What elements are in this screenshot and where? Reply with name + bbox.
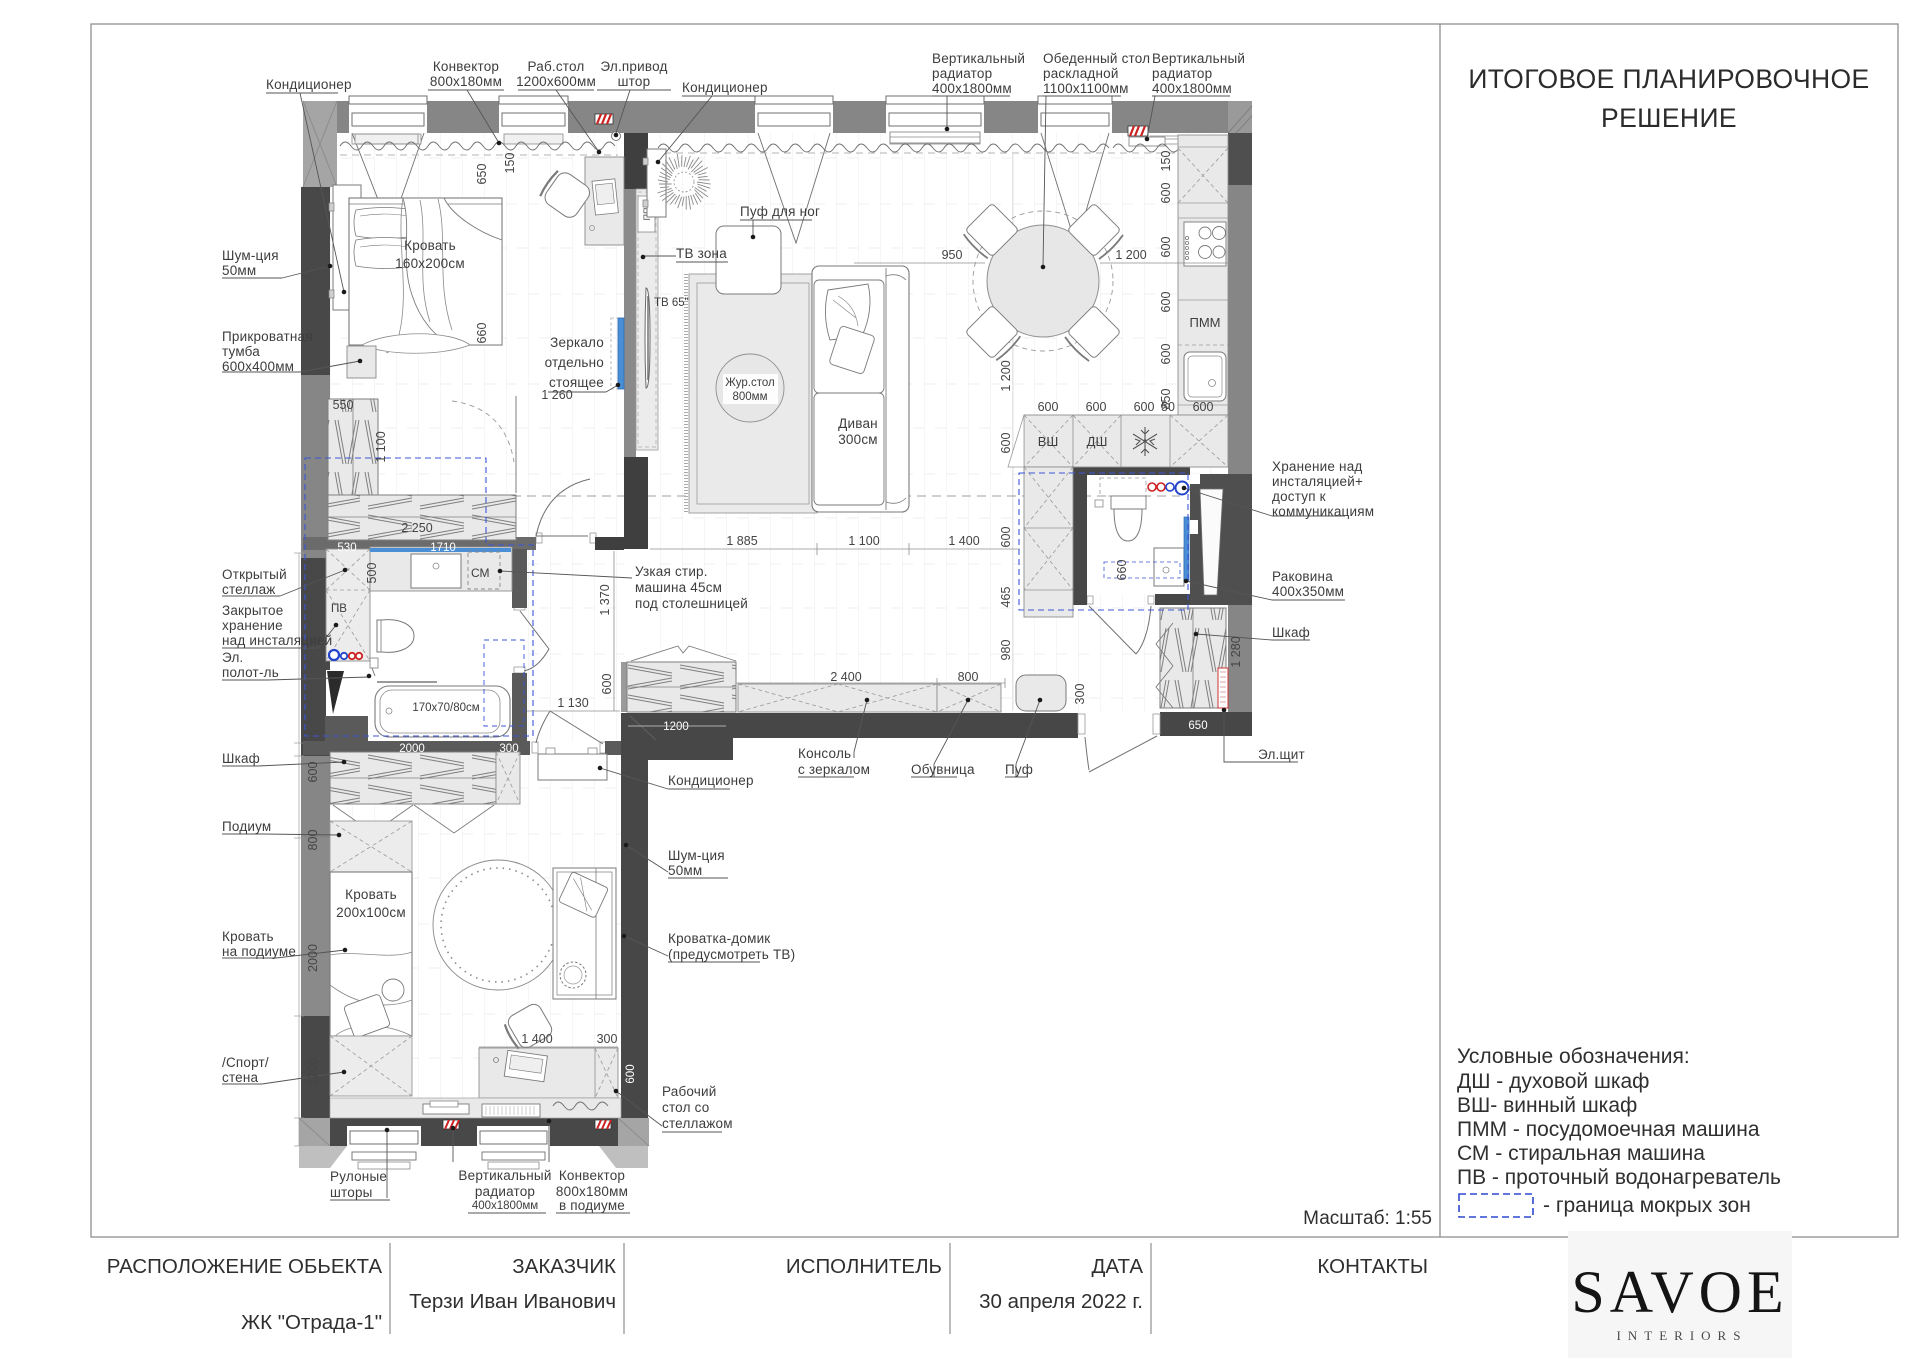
svg-text:РЕШЕНИЕ: РЕШЕНИЕ [1601,103,1737,133]
svg-text:800мм: 800мм [733,391,768,403]
svg-text:465: 465 [999,587,1013,608]
svg-text:ЗАКАЗЧИК: ЗАКАЗЧИК [512,1255,616,1278]
svg-text:660: 660 [1115,560,1129,581]
svg-text:радиатор: радиатор [475,1184,535,1199]
svg-text:Шум-ция: Шум-ция [668,848,725,863]
svg-text:Закрытое: Закрытое [222,603,283,618]
svg-text:170х70/80см: 170х70/80см [412,702,479,714]
svg-text:Диван: Диван [838,416,878,431]
svg-text:660: 660 [475,323,489,344]
svg-text:400х1800мм: 400х1800мм [472,1200,538,1212]
svg-text:коммуникациям: коммуникациям [1272,504,1374,519]
svg-text:радиатор: радиатор [932,66,992,81]
svg-text:Раковина: Раковина [1272,569,1333,584]
svg-text:ВШ: ВШ [1038,434,1059,449]
svg-text:шторы: шторы [330,1185,373,1200]
svg-text:Пуф: Пуф [1005,762,1033,777]
svg-text:600: 600 [625,1064,637,1083]
svg-text:с зеркалом: с зеркалом [798,762,870,777]
svg-text:800: 800 [958,670,979,684]
svg-text:РАСПОЛОЖЕНИЕ ОБЬЕКТА: РАСПОЛОЖЕНИЕ ОБЬЕКТА [107,1255,383,1278]
svg-text:Консоль: Консоль [798,746,851,761]
svg-text:2 400: 2 400 [830,670,861,684]
svg-text:1 130: 1 130 [557,696,588,710]
svg-text:600: 600 [306,762,320,783]
svg-text:1200х600мм: 1200х600мм [516,74,596,89]
svg-text:Обеденный стол: Обеденный стол [1043,51,1150,66]
svg-text:стена: стена [222,1070,259,1085]
svg-text:стеллаж: стеллаж [222,582,276,597]
svg-text:1710: 1710 [430,542,456,554]
svg-text:Условные обозначения:: Условные обозначения: [1457,1045,1690,1068]
svg-text:2 250: 2 250 [401,521,432,535]
svg-text:машина 45см: машина 45см [635,580,722,595]
svg-text:800: 800 [306,830,320,851]
svg-text:ПММ: ПММ [1189,315,1220,330]
svg-text:600: 600 [600,674,614,695]
svg-text:Открытый: Открытый [222,567,287,582]
svg-text:500: 500 [365,563,379,584]
svg-text:Конвектор: Конвектор [559,1168,625,1183]
svg-text:радиатор: радиатор [1152,66,1212,81]
svg-text:Пуф для ног: Пуф для ног [740,204,820,219]
svg-text:600: 600 [1193,400,1214,414]
svg-text:650: 650 [1188,720,1207,732]
svg-text:Хранение над: Хранение над [1272,459,1362,474]
svg-text:Вертикальный: Вертикальный [458,1168,551,1183]
svg-text:980: 980 [999,640,1013,661]
svg-text:50мм: 50мм [668,863,702,878]
svg-text:1 100: 1 100 [374,431,388,462]
svg-text:хранение: хранение [222,618,283,633]
svg-text:ДШ: ДШ [1087,434,1108,449]
svg-text:ДШ - духовой шкаф: ДШ - духовой шкаф [1457,1070,1649,1093]
svg-text:Зеркало: Зеркало [550,335,604,350]
svg-text:1 400: 1 400 [521,1032,552,1046]
svg-text:над инсталяцией: над инсталяцией [222,633,332,648]
svg-text:Обувница: Обувница [911,762,975,777]
svg-text:/Спорт/: /Спорт/ [222,1055,269,1070]
svg-text:Шкаф: Шкаф [222,751,260,766]
svg-text:1 260: 1 260 [541,388,572,402]
svg-text:на подиуме: на подиуме [222,944,296,959]
svg-text:600: 600 [1159,344,1173,365]
svg-text:600: 600 [1159,237,1173,258]
svg-text:1200: 1200 [306,1058,320,1086]
svg-text:160х200см: 160х200см [395,256,465,271]
svg-text:1 885: 1 885 [726,534,757,548]
svg-text:650: 650 [475,164,489,185]
svg-text:400х1800мм: 400х1800мм [932,81,1012,96]
svg-text:ПВ - проточный водонагреватель: ПВ - проточный водонагреватель [1457,1166,1781,1189]
svg-text:300см: 300см [838,432,878,447]
svg-text:отдельно: отдельно [545,355,604,370]
svg-text:300: 300 [597,1032,618,1046]
svg-text:Терзи Иван Иванович: Терзи Иван Иванович [409,1290,616,1313]
svg-text:ДАТА: ДАТА [1092,1255,1144,1278]
svg-text:(предусмотреть ТВ): (предусмотреть ТВ) [668,947,795,962]
svg-text:150: 150 [503,153,517,174]
svg-text:стол со: стол со [662,1100,709,1115]
svg-text:ИСПОЛНИТЕЛЬ: ИСПОЛНИТЕЛЬ [786,1255,942,1278]
svg-text:600: 600 [1159,292,1173,313]
svg-text:Подиум: Подиум [222,819,271,834]
svg-text:СМ - стиральная машина: СМ - стиральная машина [1457,1142,1705,1165]
svg-text:Масштаб: 1:55: Масштаб: 1:55 [1303,1208,1432,1229]
svg-text:600х400мм: 600х400мм [222,359,294,374]
svg-text:550: 550 [333,398,354,412]
svg-text:2000: 2000 [399,743,425,755]
svg-text:2000: 2000 [306,944,320,972]
svg-text:600: 600 [1038,400,1059,414]
svg-text:ПВ: ПВ [331,603,347,615]
svg-text:300: 300 [1073,684,1087,705]
svg-text:Кровать: Кровать [222,929,274,944]
svg-text:КОНТАКТЫ: КОНТАКТЫ [1317,1255,1428,1278]
svg-text:600: 600 [1159,183,1173,204]
svg-text:530: 530 [337,542,356,554]
svg-text:Узкая стир.: Узкая стир. [635,564,708,579]
svg-text:Рабочий: Рабочий [662,1084,717,1099]
svg-text:Шкаф: Шкаф [1272,625,1310,640]
svg-text:Жур.стол: Жур.стол [725,377,774,389]
svg-text:600: 600 [999,433,1013,454]
svg-text:150: 150 [1159,151,1173,172]
svg-text:600: 600 [1086,400,1107,414]
svg-text:ЖК "Отрада-1": ЖК "Отрада-1" [241,1311,382,1334]
svg-text:Кровать: Кровать [404,238,456,253]
svg-text:400х1800мм: 400х1800мм [1152,81,1232,96]
svg-text:950: 950 [942,248,963,262]
svg-text:Кровать: Кровать [345,887,397,902]
svg-text:1200: 1200 [663,721,689,733]
svg-text:Вертикальный: Вертикальный [932,51,1025,66]
svg-text:1 100: 1 100 [848,534,879,548]
svg-text:600: 600 [999,527,1013,548]
svg-text:50мм: 50мм [222,263,256,278]
svg-text:Шум-ция: Шум-ция [222,248,279,263]
svg-text:- граница мокрых зон: - граница мокрых зон [1543,1194,1751,1217]
svg-text:INTERIORS: INTERIORS [1617,1328,1748,1343]
svg-text:1 200: 1 200 [1115,248,1146,262]
svg-text:Конвектор: Конвектор [433,59,499,74]
svg-text:400х350мм: 400х350мм [1272,584,1344,599]
svg-text:600: 600 [1134,400,1155,414]
svg-text:Эл.: Эл. [222,650,243,665]
svg-text:SAVOE: SAVOE [1571,1259,1788,1325]
svg-text:1 370: 1 370 [598,584,612,615]
svg-text:под столешницей: под столешницей [635,596,748,611]
svg-text:ИТОГОВОЕ ПЛАНИРОВОЧНОЕ: ИТОГОВОЕ ПЛАНИРОВОЧНОЕ [1468,64,1869,94]
svg-text:300: 300 [499,743,518,755]
svg-text:200х100см: 200х100см [336,905,406,920]
svg-text:доступ к: доступ к [1272,489,1326,504]
svg-text:850: 850 [1159,389,1173,410]
svg-text:инсталяцией+: инсталяцией+ [1272,474,1363,489]
svg-text:Вертикальный: Вертикальный [1152,51,1245,66]
svg-text:Кроватка-домик: Кроватка-домик [668,931,770,946]
svg-text:Эл.щит: Эл.щит [1258,747,1305,762]
svg-text:в подиуме: в подиуме [559,1198,625,1213]
svg-text:Кондиционер: Кондиционер [668,773,754,788]
svg-text:ВШ- винный шкаф: ВШ- винный шкаф [1457,1094,1637,1117]
svg-text:Эл.привод: Эл.привод [600,59,667,74]
svg-text:1 280: 1 280 [1229,636,1243,667]
svg-text:штор: штор [618,74,651,89]
svg-text:Раб.стол: Раб.стол [527,59,584,74]
svg-text:ТВ зона: ТВ зона [676,246,727,261]
svg-text:раскладной: раскладной [1043,66,1119,81]
svg-text:тумба: тумба [222,344,260,359]
svg-text:полот-ль: полот-ль [222,665,279,680]
svg-text:СМ: СМ [471,566,490,580]
svg-text:1 200: 1 200 [999,360,1013,391]
svg-text:ТВ 65": ТВ 65" [654,297,689,309]
svg-text:Кондиционер: Кондиционер [682,80,768,95]
svg-text:Рулоные: Рулоные [330,1169,387,1184]
svg-text:800х180мм: 800х180мм [430,74,502,89]
svg-text:30 апреля 2022 г.: 30 апреля 2022 г. [979,1290,1143,1313]
svg-text:1100х1100мм: 1100х1100мм [1043,81,1129,96]
svg-text:Прикроватная: Прикроватная [222,329,313,344]
svg-text:800х180мм: 800х180мм [556,1184,628,1199]
svg-text:стеллажом: стеллажом [662,1116,733,1131]
svg-text:Кондиционер: Кондиционер [266,77,352,92]
svg-text:ПММ - посудомоечная машина: ПММ - посудомоечная машина [1457,1118,1760,1141]
svg-text:1 400: 1 400 [948,534,979,548]
